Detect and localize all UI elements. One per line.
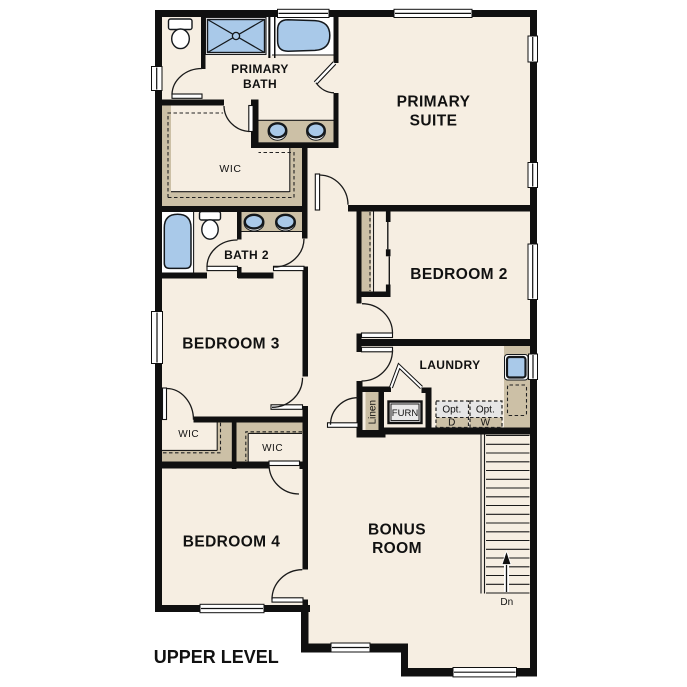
- svg-text:BATH: BATH: [243, 77, 277, 91]
- svg-text:WIC: WIC: [262, 443, 283, 454]
- svg-text:PRIMARY: PRIMARY: [397, 94, 471, 111]
- svg-text:BEDROOM 4: BEDROOM 4: [183, 534, 280, 551]
- svg-text:Opt.: Opt.: [442, 405, 461, 416]
- svg-text:Linen: Linen: [368, 400, 379, 424]
- svg-text:PRIMARY: PRIMARY: [231, 62, 289, 76]
- svg-text:Dn: Dn: [500, 597, 513, 608]
- svg-text:UPPER LEVEL: UPPER LEVEL: [154, 647, 279, 667]
- svg-text:ROOM: ROOM: [372, 540, 422, 557]
- svg-text:D: D: [448, 417, 455, 428]
- svg-text:FURN: FURN: [392, 408, 419, 419]
- svg-text:BATH 2: BATH 2: [224, 248, 269, 262]
- svg-text:WIC: WIC: [219, 163, 241, 175]
- svg-text:LAUNDRY: LAUNDRY: [419, 358, 480, 372]
- svg-text:BONUS: BONUS: [368, 522, 426, 539]
- svg-text:Opt.: Opt.: [476, 405, 495, 416]
- svg-text:SUITE: SUITE: [410, 113, 458, 130]
- svg-text:WIC: WIC: [178, 429, 199, 440]
- svg-text:BEDROOM 3: BEDROOM 3: [182, 336, 279, 353]
- svg-text:W: W: [481, 417, 491, 428]
- svg-text:BEDROOM 2: BEDROOM 2: [410, 266, 507, 283]
